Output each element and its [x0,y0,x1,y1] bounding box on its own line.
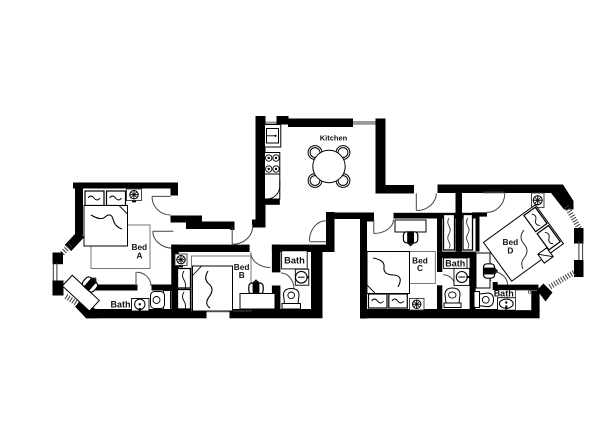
svg-text:B: B [239,270,245,280]
svg-text:A: A [137,250,143,260]
svg-text:Bath: Bath [445,258,465,268]
svg-text:C: C [417,263,423,273]
svg-text:Bath: Bath [111,299,131,309]
svg-text:Kitchen: Kitchen [320,134,348,143]
svg-text:D: D [507,245,513,255]
svg-text:Bath: Bath [494,289,514,299]
svg-text:Bath: Bath [284,255,305,265]
